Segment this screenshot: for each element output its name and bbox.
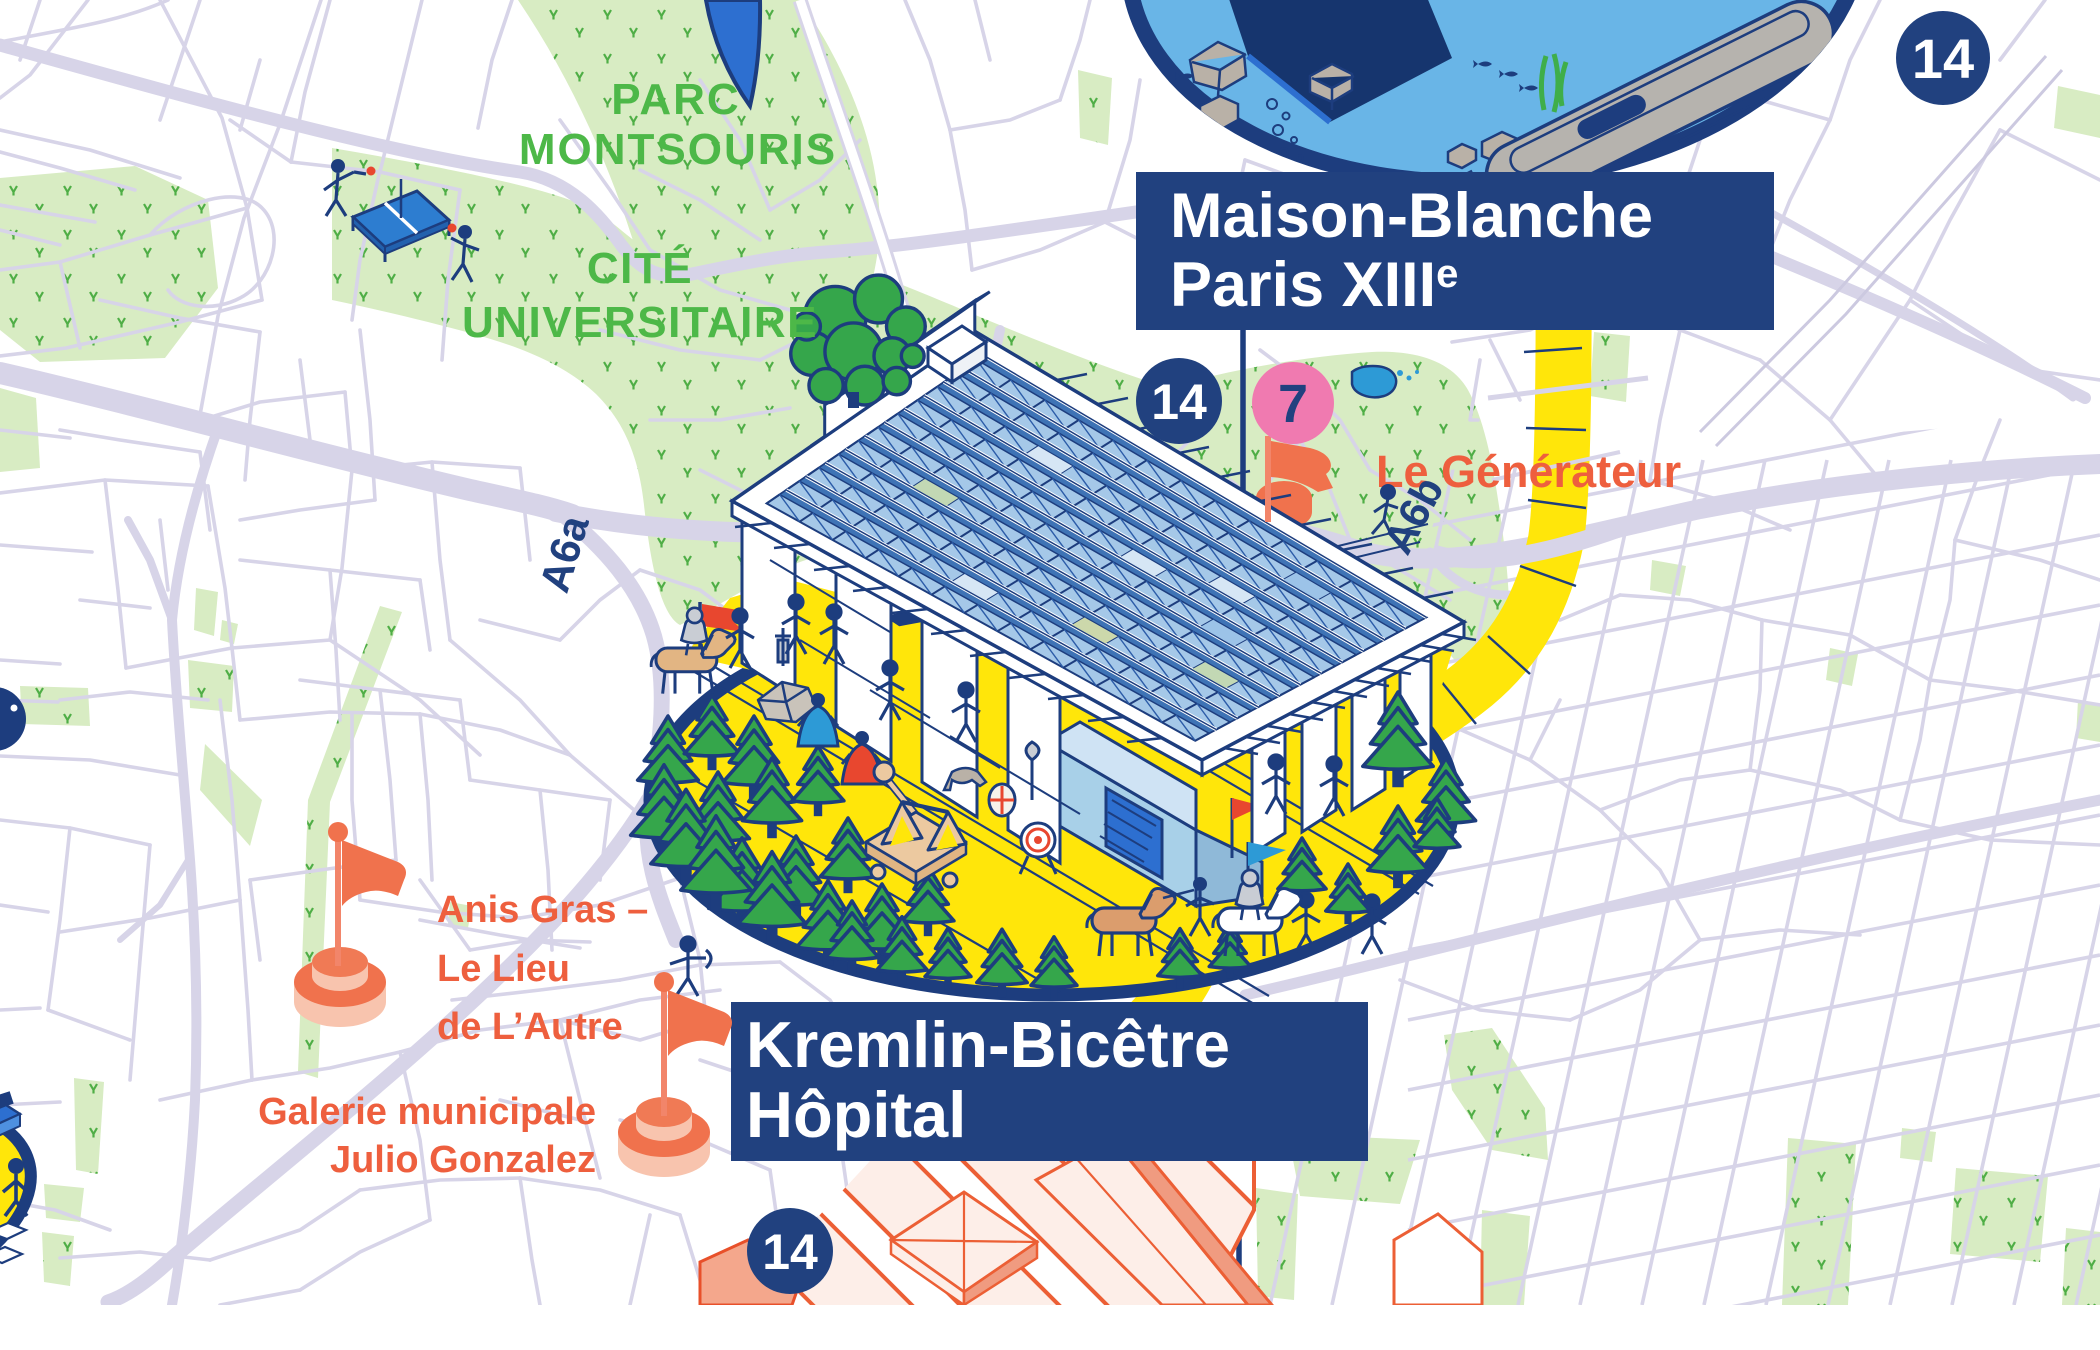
svg-text:7: 7	[1278, 374, 1308, 434]
svg-text:14: 14	[762, 1224, 818, 1280]
svg-text:Anis Gras –: Anis Gras –	[437, 889, 648, 931]
svg-text:UNIVERSITAIRE: UNIVERSITAIRE	[462, 298, 818, 347]
svg-text:MONTSOURIS: MONTSOURIS	[519, 125, 837, 174]
svg-text:Le Lieu: Le Lieu	[437, 948, 570, 990]
svg-text:de L’Autre: de L’Autre	[437, 1006, 623, 1048]
svg-text:14: 14	[1151, 374, 1207, 430]
svg-text:Kremlin-Bicêtre: Kremlin-Bicêtre	[746, 1008, 1230, 1081]
svg-text:PARC: PARC	[611, 75, 740, 124]
svg-text:Hôpital: Hôpital	[746, 1078, 966, 1151]
svg-text:14: 14	[1912, 27, 1974, 90]
svg-text:Paris XIIIe: Paris XIIIe	[1170, 250, 1458, 320]
svg-text:Julio Gonzalez: Julio Gonzalez	[330, 1139, 596, 1181]
svg-text:Galerie municipale: Galerie municipale	[258, 1091, 596, 1133]
svg-text:Maison-Blanche: Maison-Blanche	[1170, 181, 1653, 251]
svg-text:CITÉ: CITÉ	[587, 243, 693, 293]
